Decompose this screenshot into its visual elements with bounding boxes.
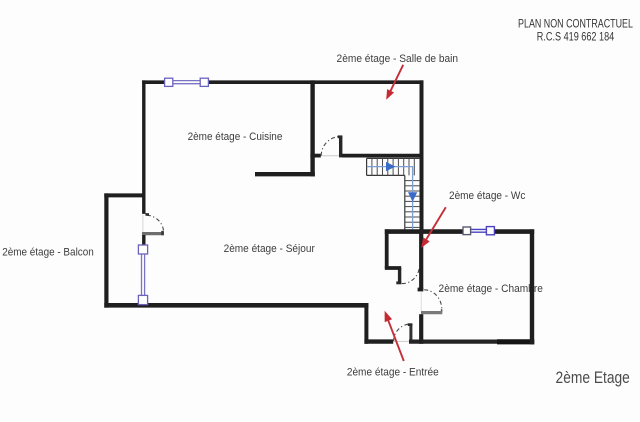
svg-text:2ème étage - Séjour: 2ème étage - Séjour xyxy=(224,243,316,255)
svg-text:2ème étage - Chambre: 2ème étage - Chambre xyxy=(439,283,543,295)
svg-text:2ème étage - Entrée: 2ème étage - Entrée xyxy=(347,367,439,379)
svg-text:2ème étage - Salle de bain: 2ème étage - Salle de bain xyxy=(337,53,459,65)
svg-text:2ème Etage: 2ème Etage xyxy=(556,368,630,387)
svg-text:2ème étage - Balcon: 2ème étage - Balcon xyxy=(2,246,94,258)
svg-text:2ème étage - Cuisine: 2ème étage - Cuisine xyxy=(188,131,283,143)
svg-text:2ème étage - Wc: 2ème étage - Wc xyxy=(449,190,526,202)
svg-text:PLAN NON CONTRACTUEL: PLAN NON CONTRACTUEL xyxy=(518,16,633,30)
svg-text:R.C.S 419 662 184: R.C.S 419 662 184 xyxy=(537,30,615,44)
